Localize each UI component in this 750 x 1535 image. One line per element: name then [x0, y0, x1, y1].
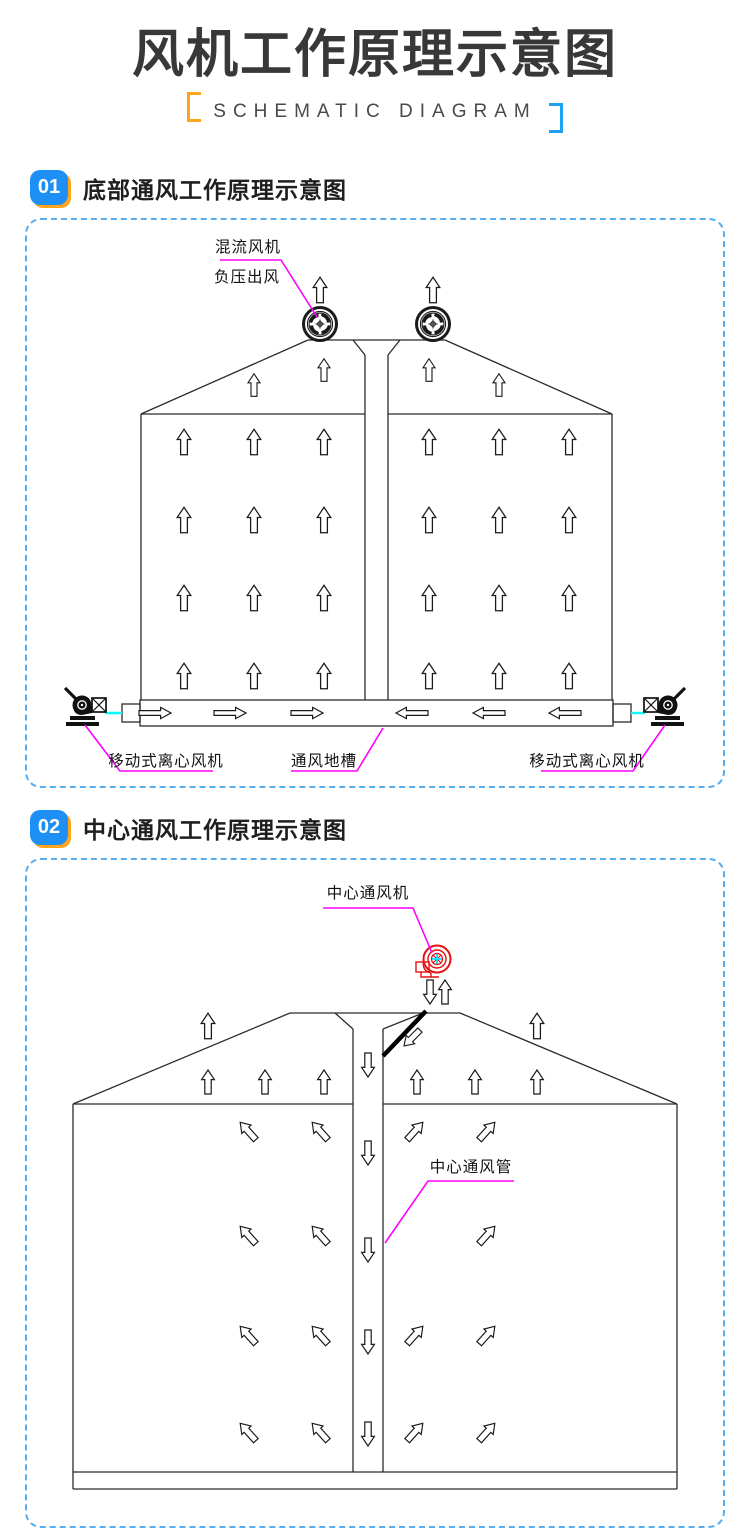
silo-outline — [73, 1013, 677, 1489]
up-arrow-icon — [177, 663, 191, 689]
subtitle: SCHEMATIC DIAGRAM — [0, 94, 750, 130]
label-ventilation-trench: 通风地槽 — [291, 752, 357, 770]
right-arrow-icon — [139, 707, 171, 718]
up-arrow-icon — [247, 507, 261, 533]
up-arrow-icon — [492, 429, 506, 455]
up-arrow-icon — [562, 429, 576, 455]
up-arrow-icon — [318, 359, 330, 382]
mixed-flow-fan-icon — [417, 307, 450, 340]
up-arrow-icon — [247, 663, 261, 689]
up-arrow-icon — [317, 429, 331, 455]
up-arrow-icon — [248, 374, 260, 397]
orange-bracket-decoration — [187, 92, 201, 122]
label-mixed-flow-fan: 混流风机 — [215, 238, 281, 256]
up-arrow-icon — [177, 585, 191, 611]
up-arrow-icon — [318, 1070, 331, 1094]
up-left-arrow-icon — [308, 1222, 333, 1248]
up-arrow-icon — [177, 507, 191, 533]
up-arrow-icon — [422, 507, 436, 533]
up-arrow-icon — [531, 1070, 544, 1094]
right-centrifugal-fan-icon — [644, 688, 685, 726]
section-header-01: 01 底部通风工作原理示意图 — [30, 170, 750, 206]
down-left-arrow-icon — [400, 1026, 424, 1050]
up-arrow-icon — [562, 507, 576, 533]
bottom-ventilation-panel: 混流风机 负压出风 移动式离心风机 通风地槽 移动式离心风机 — [25, 218, 725, 788]
up-arrow-icon — [317, 585, 331, 611]
up-arrow-icon — [201, 1013, 215, 1039]
up-arrow-icon — [492, 585, 506, 611]
up-right-arrow-icon — [475, 1118, 500, 1144]
up-arrow-icon — [562, 585, 576, 611]
up-arrow-icon — [422, 663, 436, 689]
up-arrow-icon — [562, 663, 576, 689]
up-right-arrow-icon — [475, 1419, 500, 1445]
up-arrow-icon — [247, 429, 261, 455]
left-arrow-icon — [549, 707, 581, 718]
leader-lines — [85, 260, 665, 771]
page: 风机工作原理示意图 SCHEMATIC DIAGRAM 01 底部通风工作原理示… — [0, 26, 750, 1528]
airflow-arrows — [201, 980, 544, 1446]
up-arrow-icon — [247, 585, 261, 611]
center-ventilation-diagram: 中心通风机 中心通风管 — [27, 860, 723, 1526]
silo-outline — [122, 340, 631, 726]
up-left-arrow-icon — [236, 1222, 261, 1248]
up-arrow-icon — [469, 1070, 482, 1094]
label-negative-pressure-outlet: 负压出风 — [214, 268, 280, 286]
up-right-arrow-icon — [475, 1222, 500, 1248]
section-title: 底部通风工作原理示意图 — [83, 171, 347, 205]
section-title: 中心通风工作原理示意图 — [83, 811, 347, 845]
up-arrow-icon — [426, 277, 440, 303]
up-arrow-icon — [423, 359, 435, 382]
up-arrow-icon — [492, 507, 506, 533]
up-arrow-icon — [259, 1070, 272, 1094]
left-centrifugal-fan-icon — [65, 688, 106, 726]
left-arrow-icon — [396, 707, 428, 718]
up-arrow-icon — [411, 1070, 424, 1094]
section-header-02: 02 中心通风工作原理示意图 — [30, 810, 750, 846]
up-right-arrow-icon — [475, 1322, 500, 1348]
up-arrow-icon — [317, 507, 331, 533]
center-ventilation-panel: 中心通风机 中心通风管 — [25, 858, 725, 1528]
down-arrow-icon — [362, 1053, 375, 1077]
up-arrow-icon — [530, 1013, 544, 1039]
bottom-ventilation-diagram: 混流风机 负压出风 移动式离心风机 通风地槽 移动式离心风机 — [27, 220, 723, 786]
left-arrow-icon — [473, 707, 505, 718]
label-left-mobile-fan: 移动式离心风机 — [108, 752, 224, 770]
down-arrow-icon — [362, 1330, 375, 1354]
label-right-mobile-fan: 移动式离心风机 — [529, 752, 645, 770]
up-arrow-icon — [202, 1070, 215, 1094]
up-arrow-icon — [439, 980, 452, 1004]
up-arrow-icon — [313, 277, 327, 303]
section-number-badge: 01 — [30, 170, 68, 205]
up-left-arrow-icon — [236, 1118, 261, 1144]
airflow-arrows — [139, 277, 581, 718]
down-arrow-icon — [362, 1422, 375, 1446]
subtitle-text: SCHEMATIC DIAGRAM — [213, 101, 536, 123]
up-left-arrow-icon — [308, 1322, 333, 1348]
up-arrow-icon — [422, 585, 436, 611]
up-right-arrow-icon — [403, 1118, 428, 1144]
up-left-arrow-icon — [236, 1419, 261, 1445]
blue-bracket-decoration — [549, 103, 563, 133]
section-number-badge: 02 — [30, 810, 68, 845]
label-center-duct: 中心通风管 — [430, 1158, 513, 1176]
up-arrow-icon — [317, 663, 331, 689]
page-title: 风机工作原理示意图 — [0, 26, 750, 86]
up-arrow-icon — [177, 429, 191, 455]
up-left-arrow-icon — [236, 1322, 261, 1348]
up-left-arrow-icon — [308, 1419, 333, 1445]
up-arrow-icon — [493, 374, 505, 397]
down-arrow-icon — [362, 1238, 375, 1262]
up-left-arrow-icon — [308, 1118, 333, 1144]
right-arrow-icon — [214, 707, 246, 718]
up-right-arrow-icon — [403, 1322, 428, 1348]
mixed-flow-fan-icon — [304, 307, 337, 340]
right-arrow-icon — [291, 707, 323, 718]
up-arrow-icon — [422, 429, 436, 455]
down-arrow-icon — [362, 1141, 375, 1165]
center-fan-icon — [416, 945, 451, 977]
label-center-fan: 中心通风机 — [327, 884, 410, 902]
up-right-arrow-icon — [403, 1419, 428, 1445]
up-arrow-icon — [492, 663, 506, 689]
down-arrow-icon — [424, 980, 437, 1004]
